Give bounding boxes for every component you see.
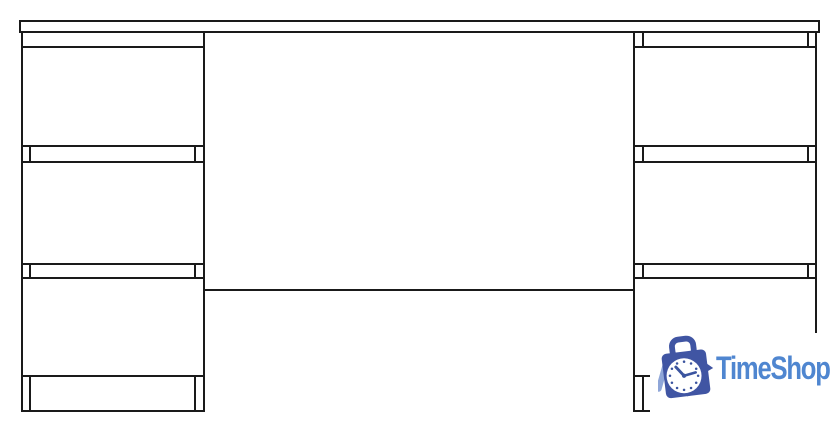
product-image: TimeShop — [0, 0, 840, 434]
left-pedestal — [22, 32, 204, 411]
brand-logo: TimeShop — [650, 333, 840, 434]
brand-name: TimeShop — [716, 335, 830, 401]
left-drawer-front-1 — [22, 47, 204, 146]
right-drawer-front-1 — [634, 47, 816, 146]
desk-top — [20, 21, 819, 32]
clock-shopping-bag-icon — [658, 335, 714, 401]
left-drawer-front-3 — [22, 278, 204, 376]
left-drawer-front-2 — [22, 162, 204, 264]
right-drawer-front-2 — [634, 162, 816, 264]
